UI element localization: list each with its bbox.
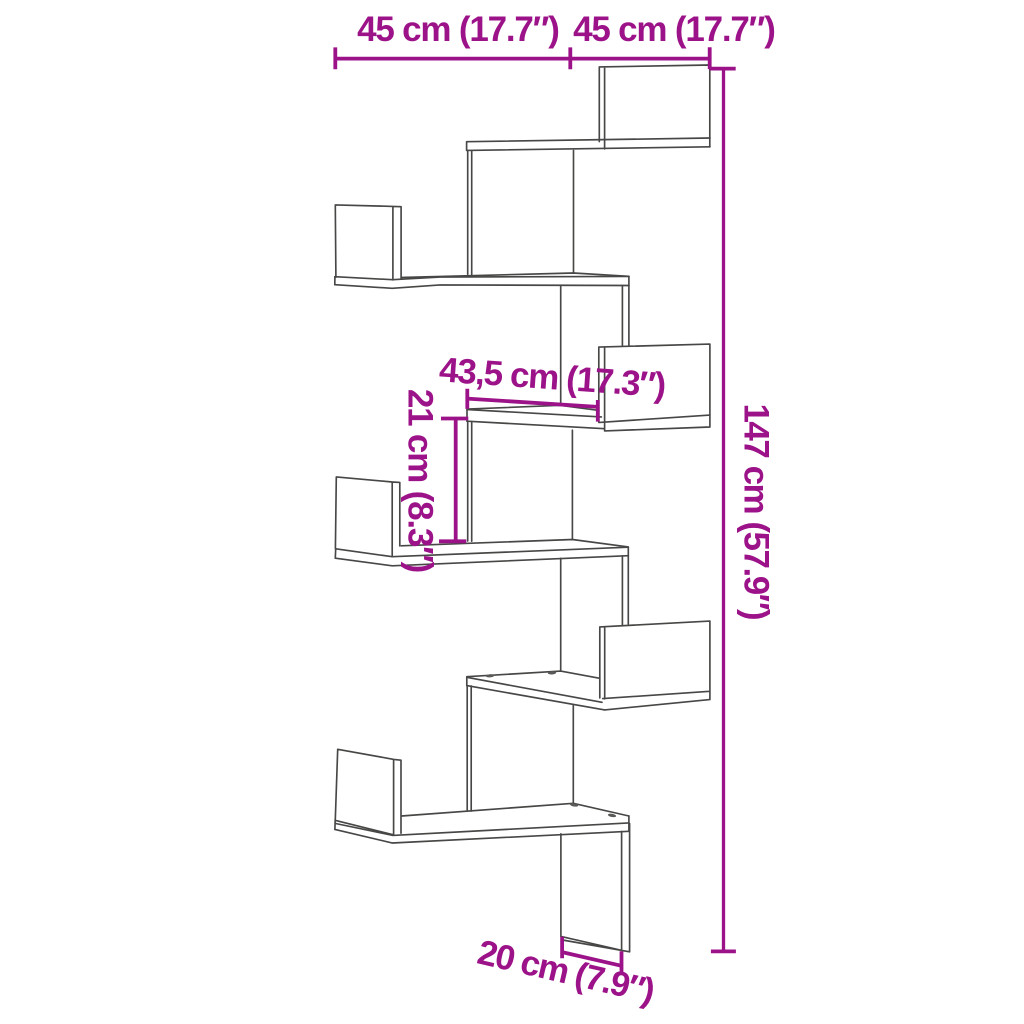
svg-text:21 cm (8.3″): 21 cm (8.3″) [401,389,440,572]
svg-text:45 cm (17.7″): 45 cm (17.7″) [357,10,559,49]
svg-text:45 cm (17.7″): 45 cm (17.7″) [573,10,775,49]
svg-text:147 cm (57.9″): 147 cm (57.9″) [737,403,776,619]
